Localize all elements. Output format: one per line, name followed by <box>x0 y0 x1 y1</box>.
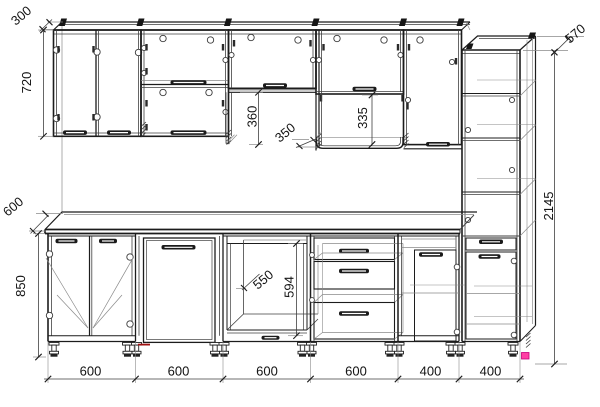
svg-text:335: 335 <box>355 107 370 129</box>
svg-text:400: 400 <box>420 364 442 379</box>
svg-text:850: 850 <box>13 275 28 297</box>
svg-text:2145: 2145 <box>541 192 556 221</box>
svg-text:600: 600 <box>80 364 102 379</box>
svg-text:600: 600 <box>256 364 278 379</box>
svg-text:600: 600 <box>345 364 367 379</box>
svg-text:360: 360 <box>245 106 260 128</box>
svg-text:720: 720 <box>19 72 34 94</box>
svg-text:400: 400 <box>480 364 502 379</box>
svg-text:600: 600 <box>168 364 190 379</box>
svg-text:594: 594 <box>282 276 297 298</box>
